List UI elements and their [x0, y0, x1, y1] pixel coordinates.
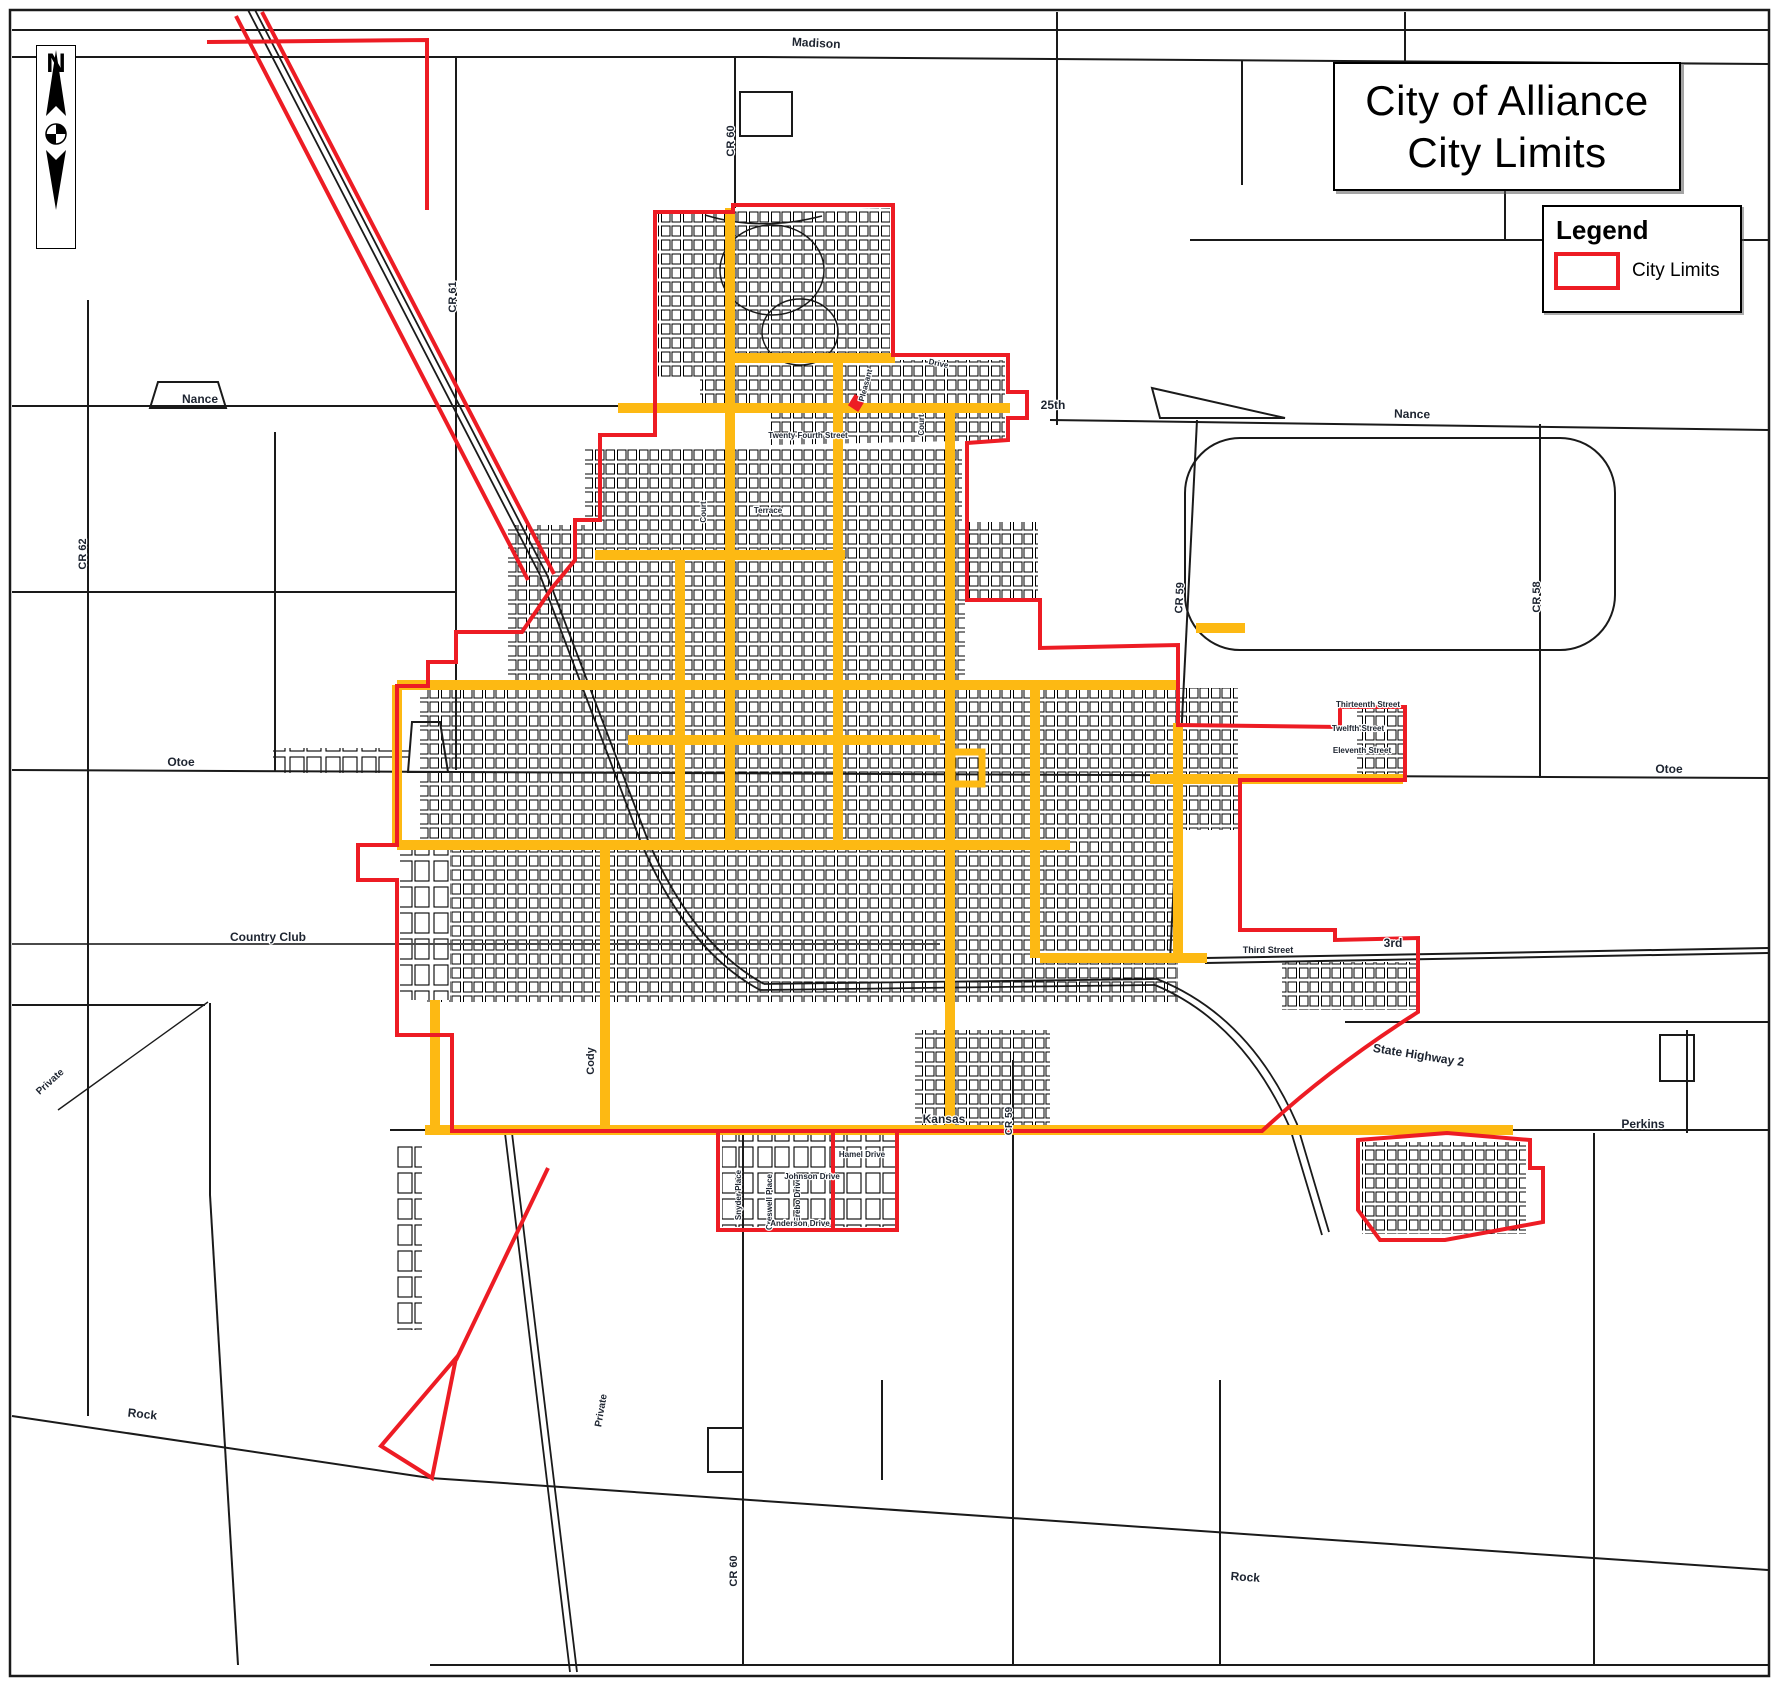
north-arrow: N: [36, 45, 76, 249]
legend-heading: Legend: [1556, 215, 1740, 246]
north-arrow-icon: [37, 46, 75, 214]
road-label: Perkins: [1621, 1117, 1665, 1131]
road-label: 3rd: [1384, 936, 1403, 950]
road-label: Twenty Fourth Street: [768, 431, 848, 440]
road-label: Snyder Place: [734, 1169, 743, 1220]
road-label: Johnson Drive: [784, 1172, 840, 1181]
road-label: Twelfth Street: [1332, 724, 1385, 733]
road-label: Anderson Drive: [770, 1219, 830, 1228]
road-label: Kansas: [923, 1112, 966, 1126]
road-label: CR 62: [77, 538, 89, 569]
road-label: Nance: [1394, 407, 1431, 422]
city-limits-map-page: MadisonCR 60CR 61NanceNanceCR 62CR 59CR …: [0, 0, 1779, 1686]
road-label: Country Club: [230, 930, 306, 944]
road-label: Otoe: [167, 755, 195, 769]
map-title-line1: City of Alliance: [1365, 75, 1648, 126]
road-label: Third Street: [1243, 945, 1294, 955]
road-label: Rock: [1230, 1569, 1261, 1585]
city-limits-swatch-icon: [1554, 252, 1620, 290]
road-label: CR 61: [447, 281, 459, 312]
legend-item-label: City Limits: [1632, 260, 1720, 282]
road-label: CR 58: [1531, 581, 1543, 612]
road-label: CR 59: [1004, 1106, 1015, 1135]
parcel-density-fills: [273, 208, 1526, 1330]
road-label: Eleventh Street: [1333, 746, 1392, 755]
map-title-line2: City Limits: [1407, 127, 1606, 178]
road-label: Otoe: [1655, 762, 1683, 776]
road-label: 25th: [1041, 398, 1066, 412]
legend-item-city-limits: City Limits: [1554, 252, 1740, 290]
road-label: Nance: [182, 392, 218, 406]
road-label: CR 59: [1173, 582, 1187, 614]
road-label: CR 60: [728, 1555, 740, 1586]
road-label: Court: [917, 414, 926, 436]
road-label: Terrace: [754, 506, 783, 515]
road-label: Private: [34, 1067, 66, 1098]
road-label: CR 60: [725, 125, 737, 156]
road-label: Erebo Drive: [793, 1177, 802, 1222]
road-label: Court: [699, 501, 708, 523]
road-label: Thirteenth Street: [1336, 700, 1400, 709]
map-canvas: MadisonCR 60CR 61NanceNanceCR 62CR 59CR …: [0, 0, 1779, 1686]
map-title: City of Alliance City Limits: [1333, 62, 1681, 191]
road-label: Madison: [792, 35, 841, 52]
legend: Legend City Limits: [1542, 205, 1742, 313]
road-label: Rock: [127, 1406, 158, 1423]
road-label: Private: [593, 1393, 610, 1428]
road-label: Hamel Drive: [839, 1150, 886, 1159]
road-label: Cody: [585, 1046, 597, 1074]
road-label: State Highway 2: [1372, 1041, 1465, 1069]
